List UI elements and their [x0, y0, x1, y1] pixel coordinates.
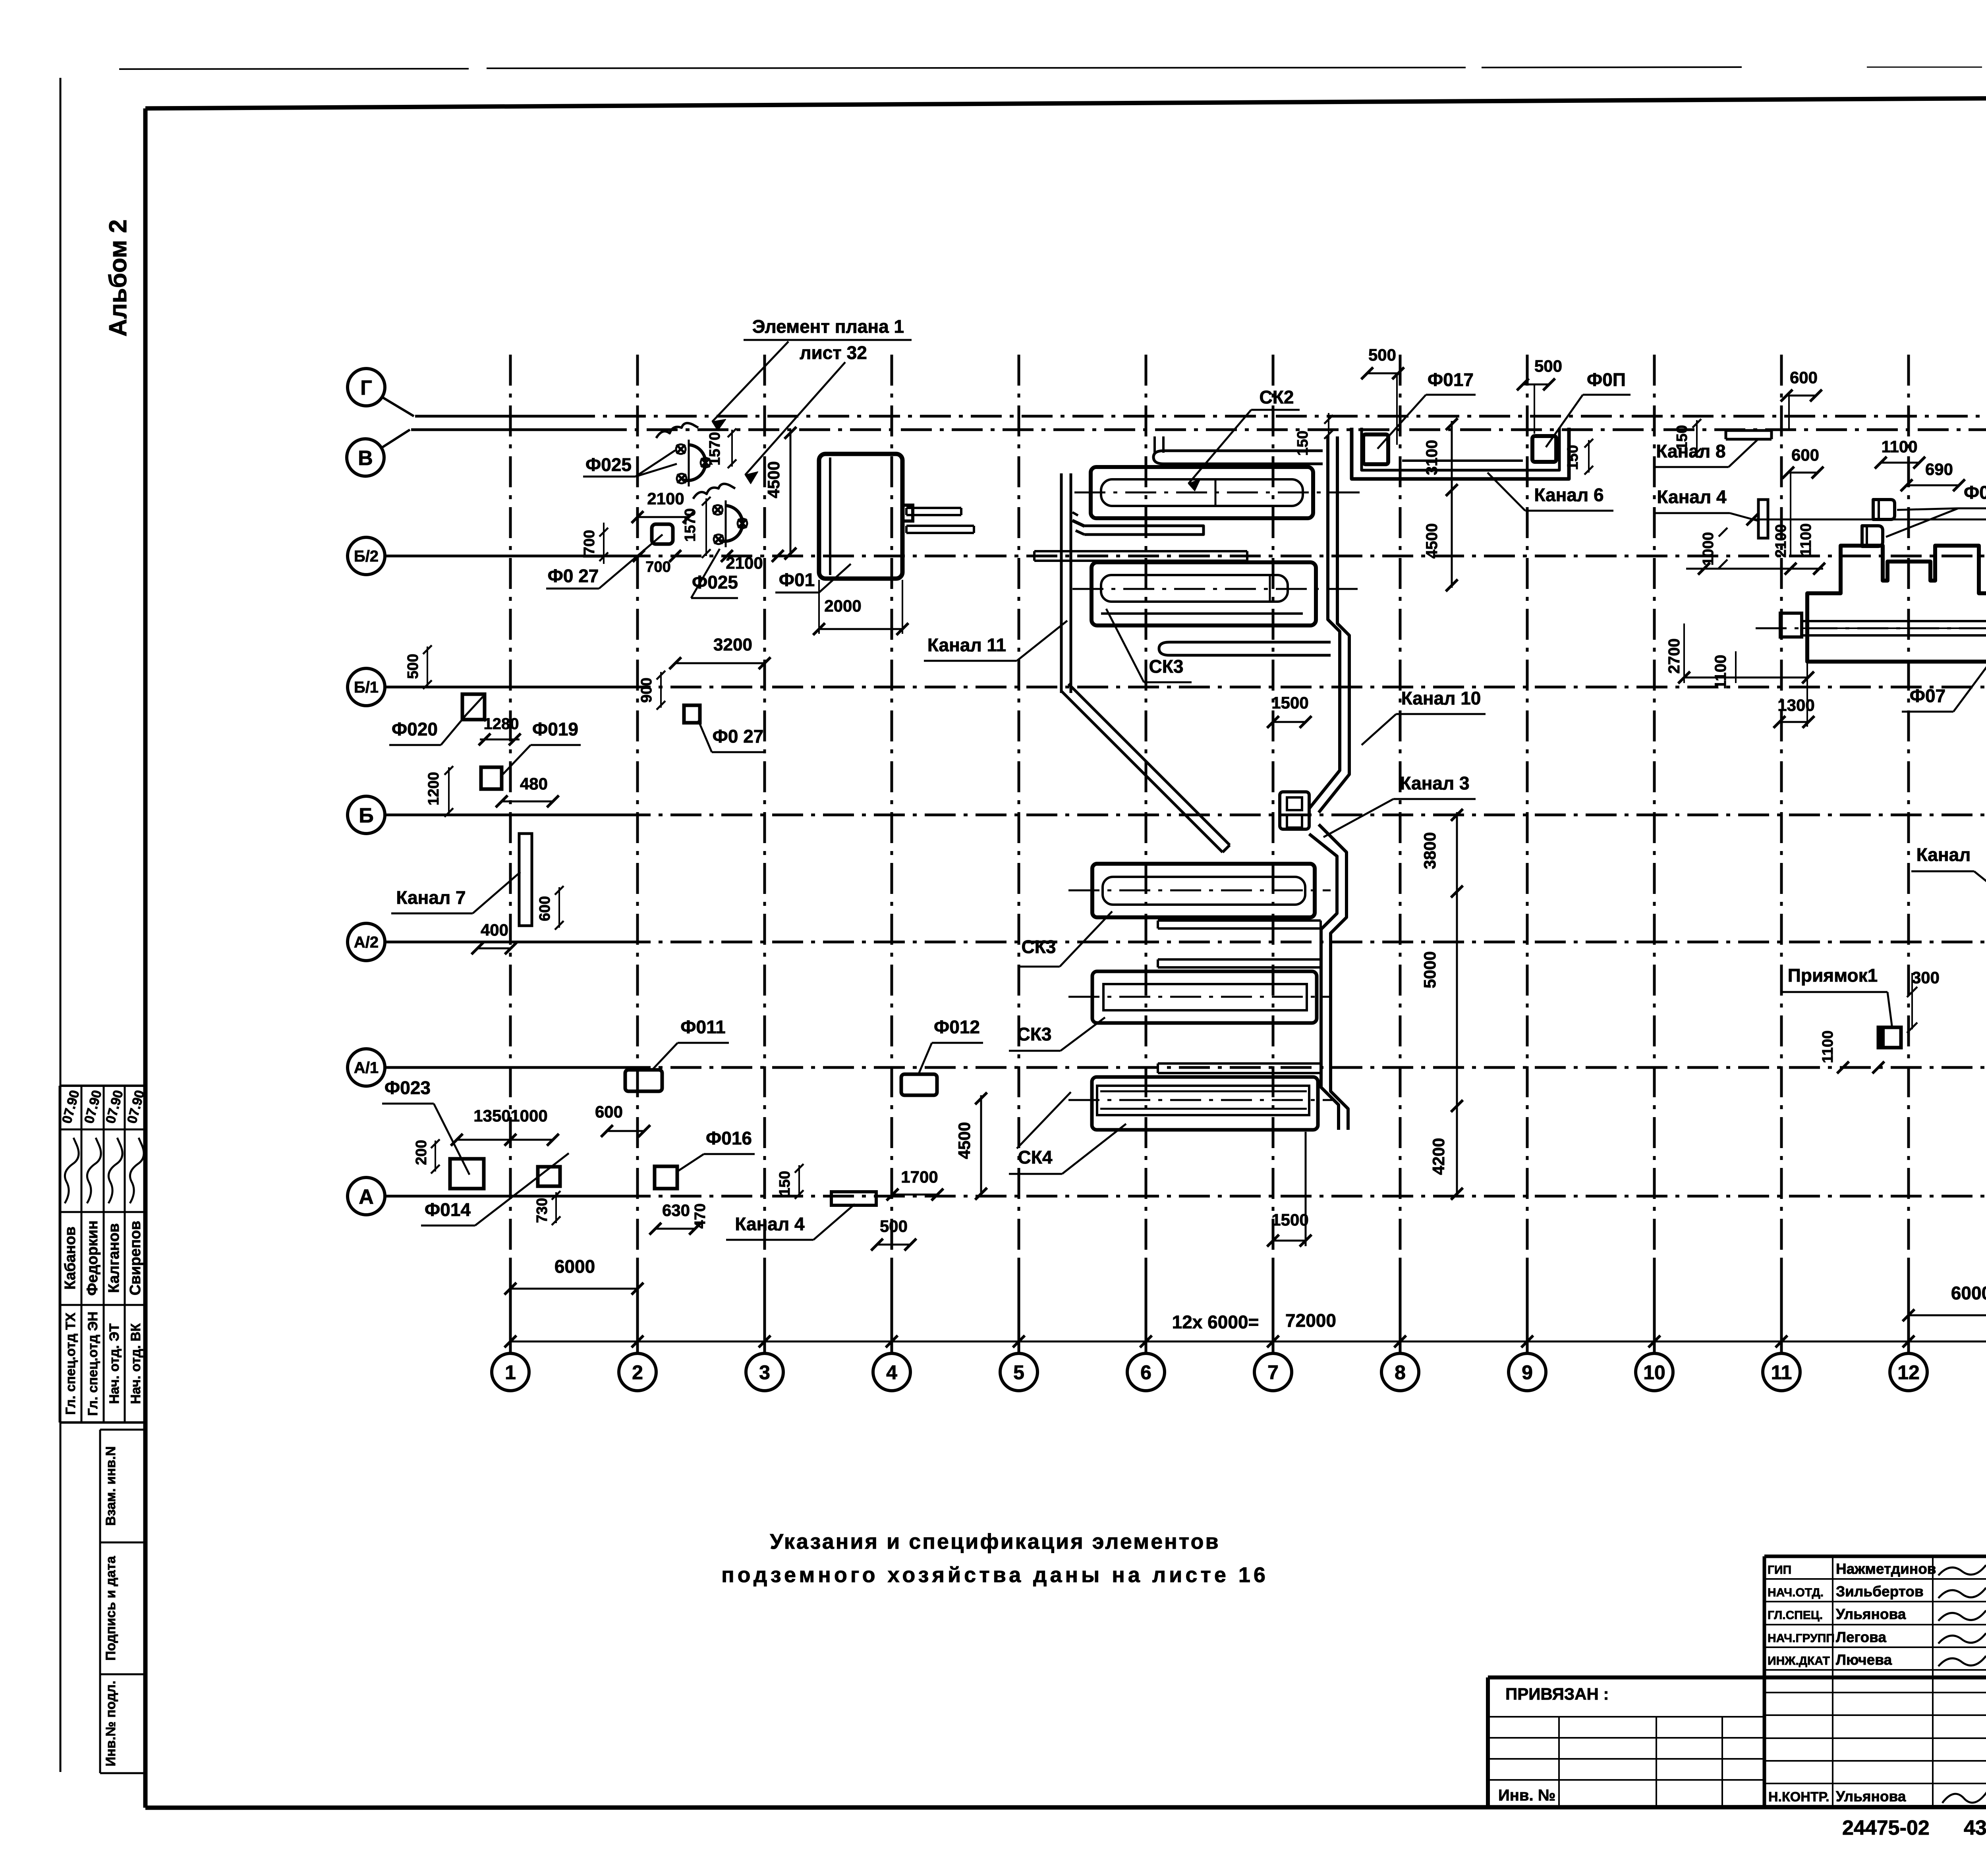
svg-text:Инв.№ подл.: Инв.№ подл. — [103, 1681, 118, 1766]
svg-text:Кабанов: Кабанов — [62, 1227, 79, 1290]
svg-text:600: 600 — [1791, 446, 1819, 464]
svg-text:3100: 3100 — [1423, 440, 1441, 475]
svg-text:Лючева: Лючева — [1836, 1652, 1892, 1668]
svg-text:6: 6 — [1140, 1361, 1151, 1384]
svg-text:Канал 3: Канал 3 — [1400, 773, 1469, 793]
svg-text:СК3: СК3 — [1149, 656, 1184, 677]
svg-text:1280: 1280 — [484, 715, 519, 733]
svg-text:1300: 1300 — [1777, 696, 1814, 714]
svg-text:900: 900 — [638, 677, 655, 703]
svg-text:Б: Б — [359, 804, 373, 827]
svg-text:Ф012: Ф012 — [934, 1017, 980, 1037]
svg-text:Элемент плана 1: Элемент плана 1 — [752, 316, 904, 337]
svg-text:Ф025: Ф025 — [585, 454, 632, 475]
svg-text:3: 3 — [759, 1361, 770, 1384]
svg-text:Ф0П: Ф0П — [1587, 369, 1626, 390]
svg-text:Ф01: Ф01 — [779, 569, 815, 590]
svg-text:1100: 1100 — [1798, 523, 1814, 556]
svg-text:ПРИВЯЗАН :: ПРИВЯЗАН : — [1505, 1685, 1609, 1703]
svg-text:СК3: СК3 — [1022, 936, 1056, 957]
svg-text:Нач. отд. ВК: Нач. отд. ВК — [128, 1323, 143, 1404]
svg-text:Свирепов: Свирепов — [127, 1221, 144, 1295]
svg-text:5000: 5000 — [1420, 951, 1439, 988]
svg-text:400: 400 — [481, 921, 508, 939]
svg-text:730: 730 — [534, 1198, 551, 1223]
svg-text:Легова: Легова — [1836, 1629, 1886, 1645]
svg-text:СК2: СК2 — [1260, 387, 1294, 407]
svg-text:Ф016: Ф016 — [706, 1128, 752, 1148]
svg-text:4: 4 — [886, 1361, 897, 1384]
svg-text:Гл. спец.отд ЭН: Гл. спец.отд ЭН — [85, 1312, 100, 1416]
svg-text:1200: 1200 — [425, 772, 442, 806]
svg-text:43: 43 — [1964, 1816, 1986, 1839]
svg-text:Канал 11: Канал 11 — [927, 635, 1006, 655]
svg-text:1: 1 — [505, 1361, 516, 1384]
svg-text:2: 2 — [632, 1361, 643, 1384]
svg-text:2700: 2700 — [1665, 639, 1683, 674]
svg-text:ГЛ.СПЕЦ.: ГЛ.СПЕЦ. — [1768, 1609, 1823, 1622]
svg-text:Ф015: Ф015 — [1964, 482, 1986, 503]
svg-text:1570: 1570 — [707, 432, 723, 466]
svg-text:Ф0 27: Ф0 27 — [548, 566, 599, 586]
svg-text:Указания и спецификация элем: Указания и спецификация элементов — [770, 1530, 1220, 1554]
svg-text:700: 700 — [645, 559, 670, 575]
svg-text:Канал 4: Канал 4 — [1657, 486, 1727, 507]
svg-text:Б/1: Б/1 — [354, 679, 379, 696]
svg-text:Приямок1: Приямок1 — [1788, 965, 1878, 986]
svg-text:НАЧ.ГРУПП: НАЧ.ГРУПП — [1768, 1632, 1835, 1645]
svg-text:1570: 1570 — [682, 508, 699, 542]
svg-text:НАЧ.ОТД.: НАЧ.ОТД. — [1768, 1586, 1824, 1599]
svg-text:470: 470 — [692, 1203, 709, 1228]
svg-text:А/1: А/1 — [354, 1059, 379, 1077]
svg-text:8: 8 — [1395, 1361, 1406, 1384]
svg-text:СК4: СК4 — [1018, 1147, 1053, 1168]
svg-text:Нач. отд. ЭТ: Нач. отд. ЭТ — [107, 1323, 122, 1404]
svg-text:Зильбертов: Зильбертов — [1836, 1583, 1924, 1600]
svg-text:Ф011: Ф011 — [680, 1017, 725, 1037]
svg-text:Альбом 2: Альбом 2 — [104, 219, 132, 336]
svg-text:3800: 3800 — [1420, 832, 1439, 869]
svg-text:Ф023: Ф023 — [384, 1077, 431, 1098]
svg-text:Канал 4: Канал 4 — [735, 1214, 805, 1234]
svg-text:1500: 1500 — [1271, 693, 1308, 712]
svg-text:1700: 1700 — [901, 1168, 938, 1186]
svg-text:Ф07: Ф07 — [1910, 685, 1945, 706]
svg-text:1000: 1000 — [1700, 532, 1717, 566]
svg-text:4500: 4500 — [1423, 523, 1441, 559]
svg-text:Подпись и дата: Подпись и дата — [103, 1556, 118, 1661]
svg-text:Калганов: Калганов — [106, 1223, 122, 1293]
svg-text:ГИП: ГИП — [1768, 1563, 1791, 1577]
svg-text:2000: 2000 — [824, 596, 861, 615]
svg-text:1000: 1000 — [510, 1106, 547, 1125]
svg-text:4500: 4500 — [764, 461, 783, 498]
svg-text:500: 500 — [1368, 345, 1396, 364]
svg-text:Канал: Канал — [1916, 844, 1971, 865]
svg-text:72000: 72000 — [1285, 1310, 1336, 1331]
svg-text:А/2: А/2 — [354, 934, 379, 951]
svg-text:Ф0 27: Ф0 27 — [713, 726, 764, 747]
svg-text:1100: 1100 — [1712, 655, 1729, 689]
svg-text:300: 300 — [1912, 968, 1940, 987]
svg-text:Канал 7: Канал 7 — [396, 887, 466, 908]
svg-text:СК3: СК3 — [1017, 1024, 1052, 1044]
svg-text:600: 600 — [595, 1102, 623, 1121]
svg-text:лист 32: лист 32 — [800, 342, 867, 363]
svg-text:1500: 1500 — [1271, 1210, 1308, 1229]
svg-text:500: 500 — [1534, 357, 1562, 375]
svg-text:6000: 6000 — [554, 1256, 595, 1277]
svg-text:500: 500 — [880, 1217, 908, 1235]
svg-text:Инв. №: Инв. № — [1498, 1787, 1555, 1804]
svg-text:9: 9 — [1522, 1361, 1533, 1384]
svg-text:600: 600 — [537, 896, 553, 921]
svg-text:480: 480 — [520, 774, 548, 793]
svg-text:2100: 2100 — [726, 554, 763, 572]
svg-text:Канал 8: Канал 8 — [1656, 441, 1725, 461]
svg-text:1350: 1350 — [473, 1106, 510, 1125]
svg-text:3200: 3200 — [713, 635, 752, 654]
svg-text:700: 700 — [581, 530, 598, 555]
svg-text:Ульянова: Ульянова — [1836, 1788, 1906, 1805]
svg-text:12: 12 — [1897, 1361, 1920, 1384]
svg-text:500: 500 — [405, 654, 421, 679]
svg-text:11: 11 — [1771, 1361, 1792, 1384]
svg-text:Н.КОНТР.: Н.КОНТР. — [1768, 1789, 1830, 1805]
svg-text:Гл. спец.отд ТХ: Гл. спец.отд ТХ — [63, 1312, 78, 1415]
svg-text:Нажметдинов: Нажметдинов — [1836, 1561, 1936, 1577]
svg-text:2100: 2100 — [647, 489, 684, 508]
svg-text:200: 200 — [413, 1140, 430, 1165]
svg-text:1100: 1100 — [1881, 437, 1917, 456]
svg-text:Федоркин: Федоркин — [84, 1220, 101, 1295]
svg-text:24475-02: 24475-02 — [1842, 1816, 1930, 1839]
svg-text:630: 630 — [662, 1201, 690, 1220]
svg-text:В: В — [358, 447, 373, 470]
svg-text:Ф017: Ф017 — [1428, 369, 1474, 390]
svg-text:Ф025: Ф025 — [692, 572, 738, 593]
svg-text:150: 150 — [1565, 445, 1581, 470]
svg-text:600: 600 — [1790, 368, 1818, 387]
svg-text:7: 7 — [1267, 1361, 1279, 1384]
svg-text:150: 150 — [777, 1171, 793, 1196]
svg-text:10: 10 — [1643, 1361, 1665, 1384]
svg-text:690: 690 — [1925, 460, 1953, 479]
svg-text:Ф014: Ф014 — [425, 1199, 471, 1220]
svg-text:1100: 1100 — [1820, 1031, 1836, 1063]
svg-text:Канал 6: Канал 6 — [1534, 484, 1603, 505]
svg-text:Взам. инв.N: Взам. инв.N — [103, 1446, 118, 1526]
svg-text:Ульянова: Ульянова — [1836, 1606, 1906, 1622]
svg-text:150: 150 — [1294, 430, 1311, 455]
svg-text:подземного хозяйства даны н: подземного хозяйства даны на листе 16 — [721, 1563, 1269, 1587]
svg-text:4500: 4500 — [955, 1122, 974, 1159]
svg-text:2100: 2100 — [1773, 524, 1789, 558]
svg-text:Ф019: Ф019 — [532, 719, 578, 739]
svg-text:А: А — [359, 1185, 374, 1208]
svg-text:Ф020: Ф020 — [392, 719, 438, 739]
svg-text:12х 6000=: 12х 6000= — [1172, 1312, 1259, 1332]
svg-text:5: 5 — [1013, 1361, 1024, 1384]
svg-text:Б/2: Б/2 — [354, 548, 379, 565]
svg-text:6000: 6000 — [1951, 1283, 1986, 1303]
svg-text:ИНЖ.ДКАТ: ИНЖ.ДКАТ — [1768, 1654, 1830, 1668]
svg-text:4200: 4200 — [1429, 1138, 1448, 1175]
svg-text:Канал 10: Канал 10 — [1401, 688, 1481, 708]
svg-text:Г: Г — [360, 376, 372, 400]
